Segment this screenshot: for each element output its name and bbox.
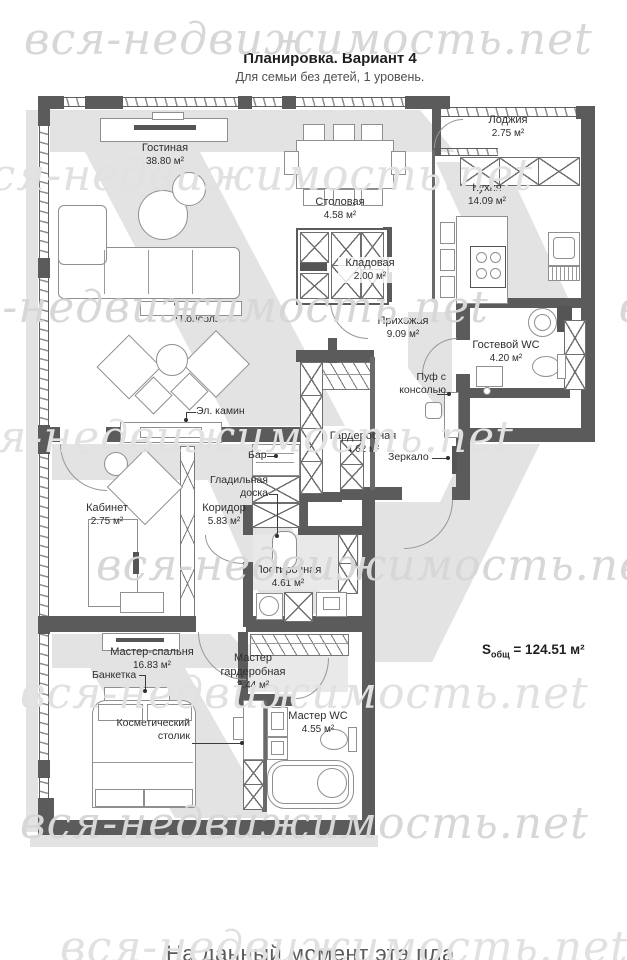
room-name: Гостиная	[118, 142, 212, 156]
room-label-living: Гостиная 38.80 м²	[118, 142, 212, 168]
annotation-fireplace: Эл. камин	[196, 405, 245, 418]
bar-shelf-line	[256, 462, 294, 463]
door-arc-master-wardrobe	[296, 658, 329, 699]
annotation-pouf: Пуф с консолью	[386, 371, 446, 397]
floorplan-page: Планировка. Вариант 4 Для семьи без дете…	[0, 0, 627, 960]
burner-icon	[476, 268, 487, 279]
burner-icon	[490, 268, 501, 279]
tv-console	[100, 118, 228, 142]
annotation-line: Косметический	[106, 717, 190, 730]
room-label-dining: Столовая 4.58 м²	[302, 196, 378, 222]
annotation-bench: Банкетка	[92, 669, 136, 682]
hall-console	[444, 392, 459, 438]
wall	[458, 428, 595, 442]
door-arc-hallway	[330, 301, 368, 339]
sofa-seam	[192, 250, 193, 294]
room-area: 4.58 м²	[302, 210, 378, 223]
wall	[38, 96, 50, 126]
room-area: 9.09 м²	[368, 329, 438, 342]
closet-cell	[243, 760, 264, 786]
room-area: 3.44 м²	[214, 680, 292, 693]
room-name: Мастер WC	[278, 710, 358, 724]
bed-foot-line	[93, 762, 193, 763]
side-table-round	[156, 344, 188, 376]
annotation-line: консолью	[386, 384, 446, 397]
wall-thin	[370, 357, 375, 490]
annotation-line: Гладильная	[198, 474, 268, 487]
leader-line	[186, 412, 196, 413]
dining-chair	[361, 124, 383, 141]
tv-icon	[134, 125, 196, 130]
door-arc-study	[60, 444, 107, 491]
wall	[38, 760, 50, 778]
annotation-line: Пуф с	[386, 371, 446, 384]
room-area: 4.20 м²	[462, 353, 550, 366]
watermark-text: вся-недвижимость.net	[619, 282, 627, 333]
closet-cell	[340, 464, 364, 490]
dining-chair	[303, 124, 325, 141]
leader-line	[176, 305, 177, 319]
laundry-closet	[338, 563, 358, 594]
annotation-line: доска	[198, 487, 268, 500]
wall	[50, 616, 196, 632]
dryer	[284, 592, 313, 622]
wall	[38, 616, 50, 634]
wall	[300, 502, 308, 527]
wall	[452, 487, 470, 500]
page-title: Планировка. Вариант 4	[0, 50, 627, 67]
room-name: Гардеробная	[320, 430, 406, 444]
burner-icon	[490, 252, 501, 263]
room-area: 2.75 м²	[70, 516, 144, 529]
wall	[405, 96, 450, 109]
annotation-mirror: Зеркало	[388, 451, 429, 464]
tv-shelf	[152, 112, 184, 120]
burner-icon	[476, 252, 487, 263]
room-name: Коридор	[184, 502, 264, 516]
wall-right	[581, 106, 595, 442]
room-area: 5.83 м²	[184, 516, 264, 529]
leader-dot	[274, 454, 278, 458]
leader-dot	[184, 418, 188, 422]
total-area-prefix: S	[482, 642, 491, 657]
pantry-divider	[300, 263, 327, 271]
tv-icon	[116, 638, 164, 642]
wc-vanity	[476, 366, 503, 387]
room-area: 4.55 м²	[278, 724, 358, 737]
room-area: 4.61 м²	[246, 578, 330, 591]
leader-dot	[447, 392, 451, 396]
leader-dot	[240, 741, 244, 745]
bar-stool	[440, 249, 455, 271]
fireplace-insert	[140, 427, 202, 438]
room-name: Кабинет	[70, 502, 144, 516]
room-name: Мастер гардеробная	[214, 652, 292, 680]
wall	[38, 798, 54, 835]
cooktop	[470, 246, 506, 288]
dressing-table	[243, 700, 264, 760]
total-area-sub: общ	[491, 650, 510, 660]
glass-partition-study	[180, 446, 195, 624]
room-name: Мастер-спальня	[96, 646, 208, 660]
drain-board	[548, 266, 580, 281]
room-area: 38.80 м²	[118, 156, 212, 169]
dressing-stool	[233, 717, 244, 740]
annotation-bar: Бар	[248, 449, 267, 462]
room-area: 2.00 м²	[338, 271, 402, 284]
closet-cell	[300, 461, 323, 494]
door-arc-laundry	[205, 535, 244, 564]
wc-vanity-knob	[483, 387, 491, 395]
shadow	[30, 835, 378, 847]
bathtub-seat	[317, 768, 347, 798]
pouf	[425, 402, 442, 419]
wall	[38, 427, 60, 442]
closet-rail	[322, 362, 372, 390]
room-area: 2.75 м²	[472, 128, 544, 141]
wall-thin	[432, 150, 435, 302]
room-label-laundry: Постирочная 4.61 м²	[246, 564, 330, 590]
room-area: 14.09 м²	[450, 196, 524, 209]
room-name: Гостевой WC	[462, 339, 550, 353]
room-label-study: Кабинет 2.75 м²	[70, 502, 144, 528]
room-name: Кладовая	[338, 257, 402, 271]
room-name: Столовая	[302, 196, 378, 210]
leader-dot	[143, 689, 147, 693]
dining-chair	[333, 124, 355, 141]
closet-cell	[300, 362, 323, 397]
wall	[465, 388, 570, 398]
page-subtitle: Для семьи без детей, 1 уровень.	[0, 70, 627, 84]
closet-cell	[300, 395, 323, 430]
bar-stool	[440, 276, 455, 298]
room-label-master-wardrobe: Мастер гардеробная 3.44 м²	[214, 652, 292, 692]
room-name: Прихожая	[368, 315, 438, 329]
dining-chair	[391, 151, 406, 175]
laundry-sink-basin	[323, 597, 340, 610]
sofa-seam	[148, 250, 149, 294]
room-label-guest-wc: Гостевой WC 4.20 м²	[462, 339, 550, 365]
room-label-master-wc: Мастер WC 4.55 м²	[278, 710, 358, 736]
shadow	[26, 110, 38, 832]
bar-stool	[440, 222, 455, 244]
leader-dot	[275, 534, 279, 538]
coffee-table-small	[172, 172, 206, 206]
dining-table	[296, 140, 394, 189]
room-label-loggia: Лоджия 2.75 м²	[472, 114, 544, 140]
wc-closet	[564, 320, 586, 356]
study-sideboard	[120, 592, 164, 613]
total-area-value: = 124.51 м²	[510, 642, 585, 657]
annotation-ironing-board: Гладильная доска	[198, 474, 268, 500]
closet-cell	[243, 784, 264, 810]
wall	[282, 96, 296, 109]
washing-machine-drum	[259, 596, 279, 616]
bed-footstool	[95, 789, 144, 807]
sofa-chaise	[58, 205, 107, 265]
laundry-closet	[338, 534, 358, 565]
closet-rail-bar	[250, 643, 347, 644]
monitor-icon	[133, 552, 139, 574]
room-name: Кухня	[450, 182, 524, 196]
leader-dot	[174, 302, 178, 306]
mirror	[452, 446, 457, 474]
sofa-seam	[104, 250, 105, 294]
pantry-shelf	[300, 273, 329, 299]
room-label-kitchen: Кухня 14.09 м²	[450, 182, 524, 208]
bed-footstool	[144, 789, 193, 807]
kitchen-cabinet	[538, 157, 580, 186]
leader-dot	[446, 456, 450, 460]
leader-line	[192, 743, 242, 744]
leader-line	[277, 494, 278, 536]
pantry-shelf	[300, 232, 329, 263]
total-area: Sобщ = 124.51 м²	[482, 642, 585, 660]
sink-basin	[553, 237, 575, 259]
window-band-left	[39, 109, 49, 820]
wall-bottom	[38, 820, 375, 835]
washbasin-inner	[534, 314, 551, 331]
room-label-corridor: Коридор 5.83 м²	[184, 502, 264, 528]
room-name: Лоджия	[472, 114, 544, 128]
closet-rail-bar	[322, 374, 370, 375]
window-loggia-kitchen	[440, 148, 498, 156]
annotation-vanity-table: Косметический столик	[106, 717, 190, 743]
wall	[38, 258, 50, 278]
bottom-caption: На данный момент эта пла	[166, 941, 455, 960]
toilet-tank	[557, 354, 566, 379]
shadow	[362, 444, 540, 662]
room-label-pantry: Кладовая 2.00 м²	[338, 257, 402, 283]
wall	[296, 350, 374, 362]
wall	[238, 96, 252, 109]
room-name: Постирочная	[246, 564, 330, 578]
annotation-console: Консоль	[180, 313, 220, 326]
wall	[362, 487, 375, 835]
annotation-line: столик	[106, 730, 190, 743]
wc-closet	[564, 354, 586, 390]
vanity-sink-basin	[271, 741, 284, 755]
room-label-hallway: Прихожая 9.09 м²	[368, 315, 438, 341]
dining-chair	[284, 151, 299, 175]
wall	[85, 96, 123, 109]
